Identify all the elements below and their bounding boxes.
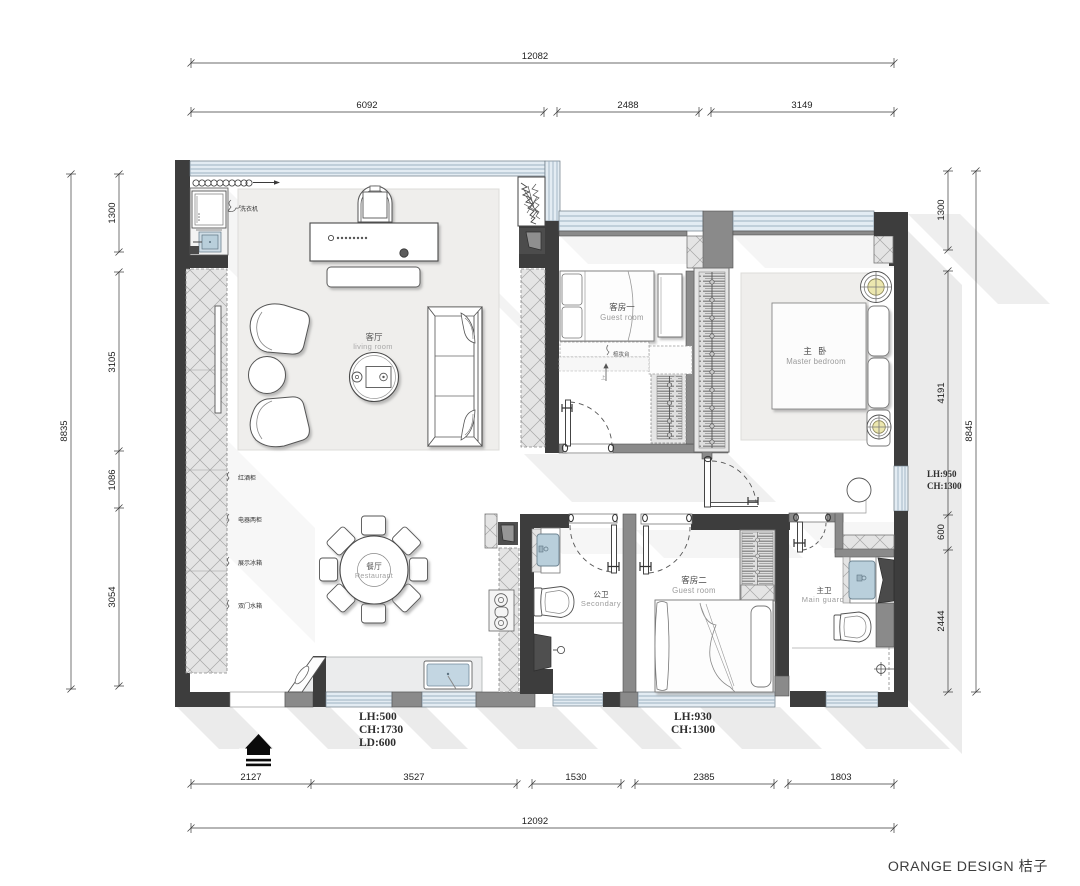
svg-text:2488: 2488: [617, 100, 638, 111]
svg-text:8835: 8835: [59, 420, 70, 441]
svg-text:3105: 3105: [107, 351, 118, 372]
svg-text:展示冰箱: 展示冰箱: [238, 559, 262, 567]
svg-text:12092: 12092: [522, 816, 548, 827]
svg-text:主 卧: 主 卧: [803, 346, 828, 356]
svg-text:Restaurant: Restaurant: [355, 571, 393, 580]
svg-text:红酒柜: 红酒柜: [238, 474, 256, 482]
svg-text:客厅: 客厅: [365, 332, 383, 342]
svg-text:Main guard: Main guard: [802, 595, 845, 604]
svg-text:1300: 1300: [107, 202, 118, 223]
svg-text:电器两柜: 电器两柜: [238, 516, 262, 524]
svg-text:3527: 3527: [403, 772, 424, 783]
svg-text:living room: living room: [353, 342, 393, 351]
svg-text:Master bedroom: Master bedroom: [786, 357, 846, 366]
svg-text:4191: 4191: [936, 382, 947, 403]
svg-text:客房一: 客房一: [609, 302, 635, 312]
svg-text:3149: 3149: [791, 100, 812, 111]
svg-text:LD:600: LD:600: [359, 737, 396, 749]
svg-text:6092: 6092: [356, 100, 377, 111]
svg-text:12082: 12082: [522, 51, 548, 62]
svg-text:Secondary: Secondary: [581, 599, 621, 608]
svg-text:2385: 2385: [693, 772, 714, 783]
svg-text:客房二: 客房二: [681, 575, 707, 585]
svg-text:1086: 1086: [107, 469, 118, 490]
svg-text:CH:1300: CH:1300: [927, 481, 962, 491]
svg-text:1300: 1300: [936, 199, 947, 220]
svg-text:CH:1300: CH:1300: [671, 724, 715, 736]
svg-text:LH:930: LH:930: [674, 711, 712, 723]
svg-text:梳妆台: 梳妆台: [613, 350, 630, 358]
svg-text:CH:1730: CH:1730: [359, 724, 403, 736]
svg-text:Guest room: Guest room: [600, 313, 644, 322]
svg-text:600: 600: [936, 524, 947, 540]
svg-text:LH:500: LH:500: [359, 711, 397, 723]
svg-text:2127: 2127: [240, 772, 261, 783]
svg-text:3054: 3054: [107, 586, 118, 607]
svg-text:双门水箱: 双门水箱: [238, 602, 262, 610]
svg-text:LH:950: LH:950: [927, 469, 957, 479]
svg-text:ORANGE DESIGN 桔子: ORANGE DESIGN 桔子: [888, 859, 1048, 875]
svg-text:1803: 1803: [830, 772, 851, 783]
svg-text:8845: 8845: [964, 420, 975, 441]
svg-text:Guest room: Guest room: [672, 586, 716, 595]
svg-text:公卫: 公卫: [594, 590, 609, 599]
svg-text:上: 上: [601, 374, 606, 380]
svg-text:1530: 1530: [565, 772, 586, 783]
svg-text:主卫: 主卫: [817, 585, 832, 595]
svg-text:餐厅: 餐厅: [366, 562, 382, 571]
svg-text:2444: 2444: [936, 610, 947, 631]
svg-text:洗衣机: 洗衣机: [240, 205, 258, 213]
